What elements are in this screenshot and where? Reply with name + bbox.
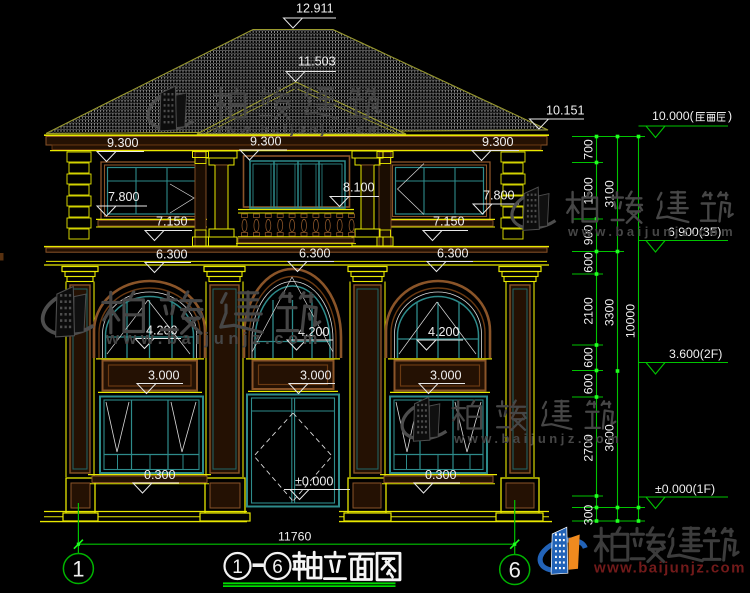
svg-text:6.300: 6.300 — [437, 246, 469, 260]
svg-text:7.800: 7.800 — [108, 190, 140, 204]
svg-text:±0.000: ±0.000 — [295, 474, 333, 488]
svg-text:www.baijunjz.com: www.baijunjz.com — [211, 121, 383, 136]
svg-text:3.000: 3.000 — [430, 368, 462, 382]
svg-text:11.503: 11.503 — [298, 54, 336, 68]
svg-text:600: 600 — [582, 374, 596, 395]
svg-text:1: 1 — [72, 557, 84, 582]
svg-text:3.600(2F): 3.600(2F) — [669, 347, 722, 361]
svg-text:9.300: 9.300 — [482, 135, 514, 149]
svg-text:1: 1 — [232, 557, 243, 578]
svg-text:7.800: 7.800 — [483, 188, 515, 202]
svg-text:7.150: 7.150 — [156, 214, 188, 228]
svg-text:600: 600 — [582, 252, 596, 273]
svg-text:11760: 11760 — [278, 530, 311, 544]
svg-text:3.000: 3.000 — [148, 368, 180, 382]
svg-text:www.baijunjz.com: www.baijunjz.com — [105, 330, 322, 348]
svg-text:12.911: 12.911 — [296, 1, 334, 15]
svg-text:7.150: 7.150 — [433, 214, 465, 228]
svg-text:±0.000(1F): ±0.000(1F) — [655, 482, 715, 496]
svg-text:9.300: 9.300 — [107, 136, 139, 150]
svg-text:9.300: 9.300 — [250, 134, 282, 148]
svg-text:10.000(: 10.000( — [652, 109, 695, 123]
svg-text:10.151: 10.151 — [546, 103, 585, 117]
svg-text:6.300: 6.300 — [299, 246, 331, 260]
svg-text:8.100: 8.100 — [343, 180, 375, 194]
svg-text:4.200: 4.200 — [428, 325, 460, 339]
svg-text:3.000: 3.000 — [300, 368, 332, 382]
svg-text:6: 6 — [272, 557, 283, 578]
svg-text:): ) — [728, 109, 732, 123]
svg-text:0.300: 0.300 — [425, 468, 457, 482]
svg-text:www.baijunjz.com: www.baijunjz.com — [453, 431, 622, 446]
svg-text:6.300: 6.300 — [156, 247, 188, 261]
svg-text:www.baijunjz.com: www.baijunjz.com — [593, 560, 746, 577]
svg-text:www.baijunjz.com: www.baijunjz.com — [567, 224, 736, 239]
svg-text:600: 600 — [582, 347, 596, 368]
svg-text:0.300: 0.300 — [144, 468, 176, 482]
svg-text:700: 700 — [582, 139, 596, 160]
svg-text:2100: 2100 — [582, 297, 596, 325]
svg-text:10000: 10000 — [624, 304, 638, 338]
svg-text:6: 6 — [509, 558, 521, 583]
svg-text:3300: 3300 — [603, 299, 617, 327]
svg-text:300: 300 — [582, 505, 596, 526]
